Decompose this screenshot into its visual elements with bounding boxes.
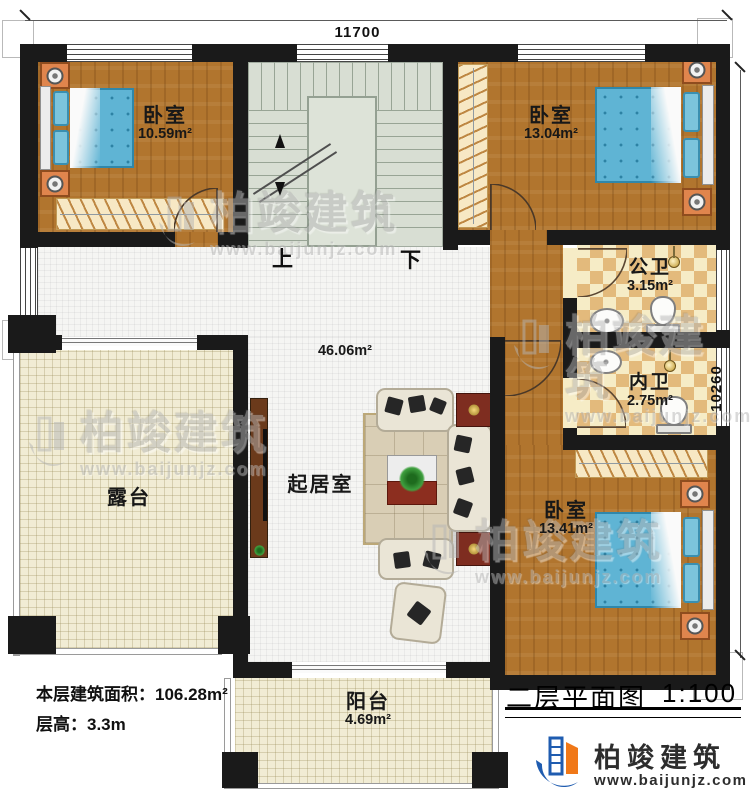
sofa-pillow	[393, 551, 411, 569]
wall	[233, 44, 248, 248]
brand-logo: 柏竣建筑 www.baijunjz.com	[534, 730, 744, 794]
wall	[563, 435, 716, 450]
door-opening	[563, 248, 577, 298]
living-area-label: 46.06m²	[310, 344, 380, 360]
room-area: 4.69m²	[330, 713, 406, 729]
table-knob-icon	[469, 405, 480, 416]
table-knob-icon	[469, 544, 480, 555]
stair-landing	[307, 96, 377, 247]
stairs-up-label: 上	[272, 243, 293, 273]
double-bed	[593, 85, 714, 185]
wall	[443, 230, 490, 245]
room-area: 10.59m²	[115, 127, 215, 143]
room-area: 13.04m²	[501, 127, 601, 143]
room-name: 阳台	[330, 691, 406, 713]
wall	[443, 44, 458, 250]
room-area: 2.75m²	[605, 394, 695, 410]
sofa-pillow	[453, 498, 474, 519]
bed-pillow	[53, 130, 69, 165]
wall	[563, 332, 716, 348]
bed-pillow	[683, 517, 700, 557]
door-arc	[490, 184, 536, 230]
title-underline	[505, 707, 741, 710]
room-name: 卧室	[516, 500, 616, 522]
sofa-long	[447, 424, 492, 532]
nightstand	[40, 170, 70, 197]
room-name: 公卫	[605, 258, 695, 279]
door-opening	[490, 230, 547, 245]
room-area: 3.15m²	[605, 279, 695, 295]
dimension-height: 10260	[708, 361, 725, 416]
bed-sheet	[651, 87, 681, 183]
wall	[233, 662, 292, 678]
stair-treads-right	[377, 110, 443, 235]
column	[8, 616, 56, 654]
nightstand	[680, 480, 710, 508]
sofa-pillow	[429, 397, 447, 415]
sofa-pillow	[454, 435, 473, 454]
wall	[490, 337, 505, 678]
brand-url: www.baijunjz.com	[594, 772, 747, 789]
wall	[233, 335, 248, 662]
lamp-icon	[47, 67, 64, 84]
nightstand	[40, 62, 70, 89]
room-label-private-bath: 内卫 2.75m²	[605, 373, 695, 410]
bed-headboard	[702, 85, 714, 185]
bed-headboard	[40, 86, 51, 170]
room-name: 内卫	[605, 373, 695, 394]
room-area: 13.41m²	[516, 522, 616, 538]
terrace-sliding-door	[62, 338, 197, 346]
shower-hose	[673, 246, 675, 258]
column	[472, 752, 508, 788]
room-label-bedroom1: 卧室 10.59m²	[115, 105, 215, 143]
window	[716, 250, 730, 330]
door-opening	[563, 378, 577, 428]
sink	[590, 308, 624, 334]
tv-cabinet	[250, 398, 268, 558]
brand-name: 柏竣建筑	[594, 736, 726, 775]
room-name: 卧室	[115, 105, 215, 127]
window	[297, 44, 388, 62]
bed-sheet	[70, 88, 100, 168]
sofa-pillow	[406, 601, 431, 626]
plant-icon	[399, 466, 425, 492]
room-label-bedroom2: 卧室 13.04m²	[501, 105, 601, 143]
lamp-icon	[689, 194, 706, 211]
room-label-balcony: 阳台 4.69m²	[330, 691, 406, 729]
window	[518, 44, 645, 62]
balcony-sliding-door	[292, 665, 446, 673]
column	[222, 752, 258, 788]
sofa-pillow	[408, 395, 427, 414]
terrace-parapet	[13, 350, 20, 656]
plant-icon	[254, 545, 265, 556]
room-label-public-bath: 公卫 3.15m²	[605, 258, 695, 295]
floor-plan: 卧室 10.59m² 卧室 13.04m² 卧室 13.41m² 46.06m²…	[0, 0, 750, 802]
sofa-pillow	[384, 396, 404, 416]
door-arc	[174, 188, 218, 232]
wall	[563, 428, 577, 450]
tv-icon	[263, 429, 267, 521]
side-table	[456, 393, 492, 427]
bed-pillow	[683, 563, 700, 603]
room-name: 卧室	[501, 105, 601, 127]
wall	[218, 232, 248, 247]
bedroom3-rug	[575, 448, 708, 478]
wall	[547, 230, 716, 245]
chaise	[389, 581, 448, 645]
toilet-tank	[656, 424, 692, 434]
bedroom2-closet-rug	[458, 64, 488, 228]
window	[20, 248, 38, 315]
bed-sheet	[651, 512, 681, 608]
sofa-pillow	[422, 550, 441, 569]
sofa-pillow	[455, 466, 474, 485]
room-name: 露台	[103, 487, 155, 509]
side-table	[456, 532, 492, 566]
dimension-tick	[19, 9, 30, 20]
door-opening	[175, 232, 218, 247]
lamp-icon	[689, 62, 706, 79]
room-label-bedroom3: 卧室 13.41m²	[516, 500, 616, 538]
dimension-line-right	[740, 70, 741, 658]
wall	[20, 232, 175, 247]
brand-logo-icon	[534, 734, 588, 792]
floor-height-text: 层高：3.3m	[36, 710, 126, 735]
room-name: 起居室	[278, 474, 363, 496]
room-label-living: 起居室	[278, 474, 363, 496]
floor-area-text: 本层建筑面积：106.28m²	[36, 680, 228, 705]
stair-up-arrow	[275, 134, 285, 148]
bed-headboard	[702, 510, 714, 610]
sofa-seat	[378, 538, 454, 580]
dimension-line-top	[25, 20, 727, 21]
nightstand	[680, 612, 710, 640]
bed-pillow	[53, 91, 69, 126]
room-area: 46.06m²	[310, 344, 380, 360]
lamp-icon	[47, 175, 64, 192]
column	[218, 616, 250, 654]
room-label-terrace: 露台	[103, 487, 155, 509]
lamp-icon	[687, 486, 704, 503]
sink	[590, 350, 622, 374]
column	[8, 315, 56, 353]
wall	[20, 44, 38, 248]
wall	[563, 298, 577, 378]
bed-pillow	[683, 92, 700, 132]
bed-pillow	[683, 138, 700, 178]
shower-hose	[669, 350, 671, 361]
shower-head-icon	[664, 360, 676, 372]
balcony-parapet	[224, 783, 499, 789]
title-underline	[505, 717, 741, 718]
living-room-floor	[38, 247, 490, 337]
window	[67, 44, 192, 62]
stairs-down-label: 下	[400, 244, 421, 274]
door-arc	[505, 340, 561, 396]
dimension-width: 11700	[320, 24, 395, 41]
stair-down-arrow	[275, 182, 285, 196]
nightstand	[682, 188, 712, 216]
lamp-icon	[687, 618, 704, 635]
sofa-loveseat	[376, 388, 454, 432]
